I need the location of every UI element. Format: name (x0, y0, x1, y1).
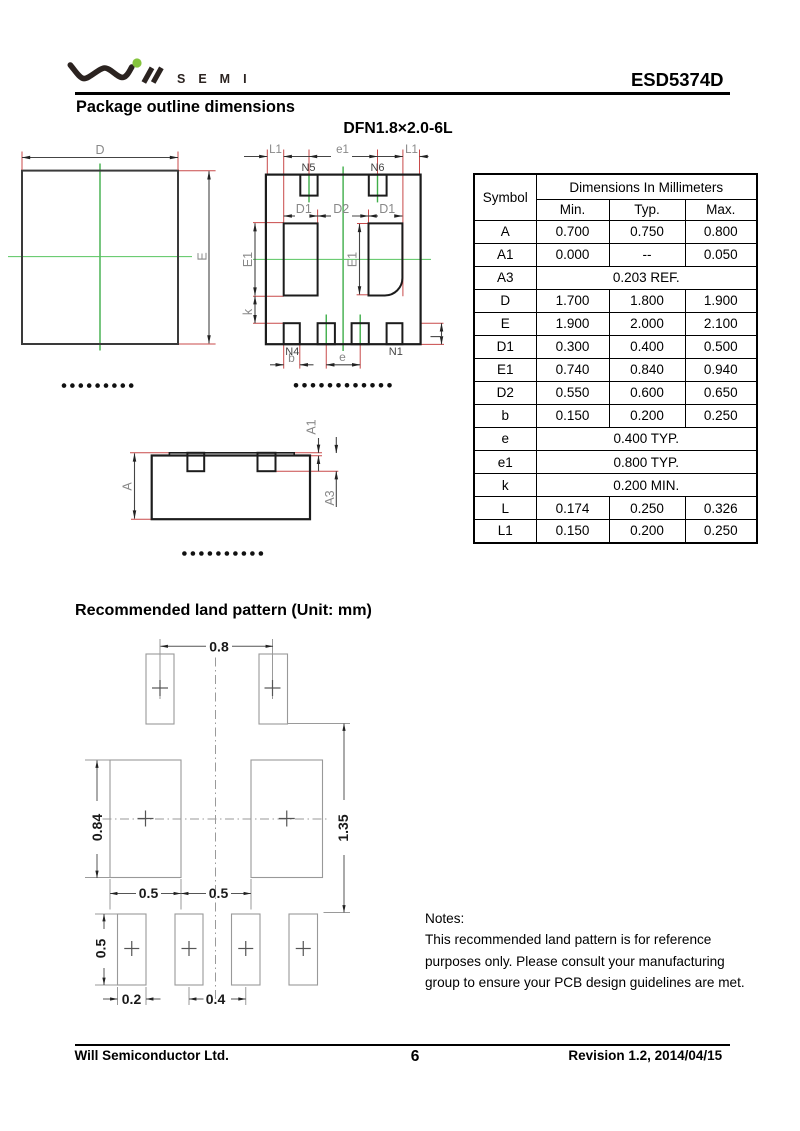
svg-text:b: b (288, 351, 295, 365)
svg-text:0.84: 0.84 (89, 814, 105, 841)
svg-text:D1: D1 (296, 202, 312, 216)
svg-text:e: e (339, 350, 346, 364)
svg-text:E: E (196, 252, 210, 260)
svg-text:0.2: 0.2 (122, 991, 142, 1007)
svg-text:1.35: 1.35 (335, 814, 351, 841)
svg-text:D: D (95, 143, 104, 157)
svg-text:0.8: 0.8 (209, 639, 229, 655)
svg-text:A3: A3 (323, 490, 337, 505)
svg-text:A1: A1 (305, 419, 319, 434)
svg-text:0.5: 0.5 (139, 885, 159, 901)
svg-text:E1: E1 (346, 252, 360, 267)
svg-text:0.5: 0.5 (209, 885, 229, 901)
svg-text:E1: E1 (241, 252, 255, 267)
svg-text:D2: D2 (333, 202, 349, 216)
svg-text:N6: N6 (370, 162, 384, 174)
svg-text:L1: L1 (269, 144, 282, 156)
svg-text:L1: L1 (405, 144, 418, 156)
svg-text:D1: D1 (379, 202, 395, 216)
svg-text:0.4: 0.4 (206, 991, 226, 1007)
svg-text:N5: N5 (301, 162, 315, 174)
svg-text:N1: N1 (389, 346, 403, 358)
svg-text:e1: e1 (336, 144, 349, 156)
svg-text:k: k (241, 308, 255, 315)
svg-text:0.5: 0.5 (93, 939, 109, 959)
svg-text:A: A (121, 482, 135, 491)
